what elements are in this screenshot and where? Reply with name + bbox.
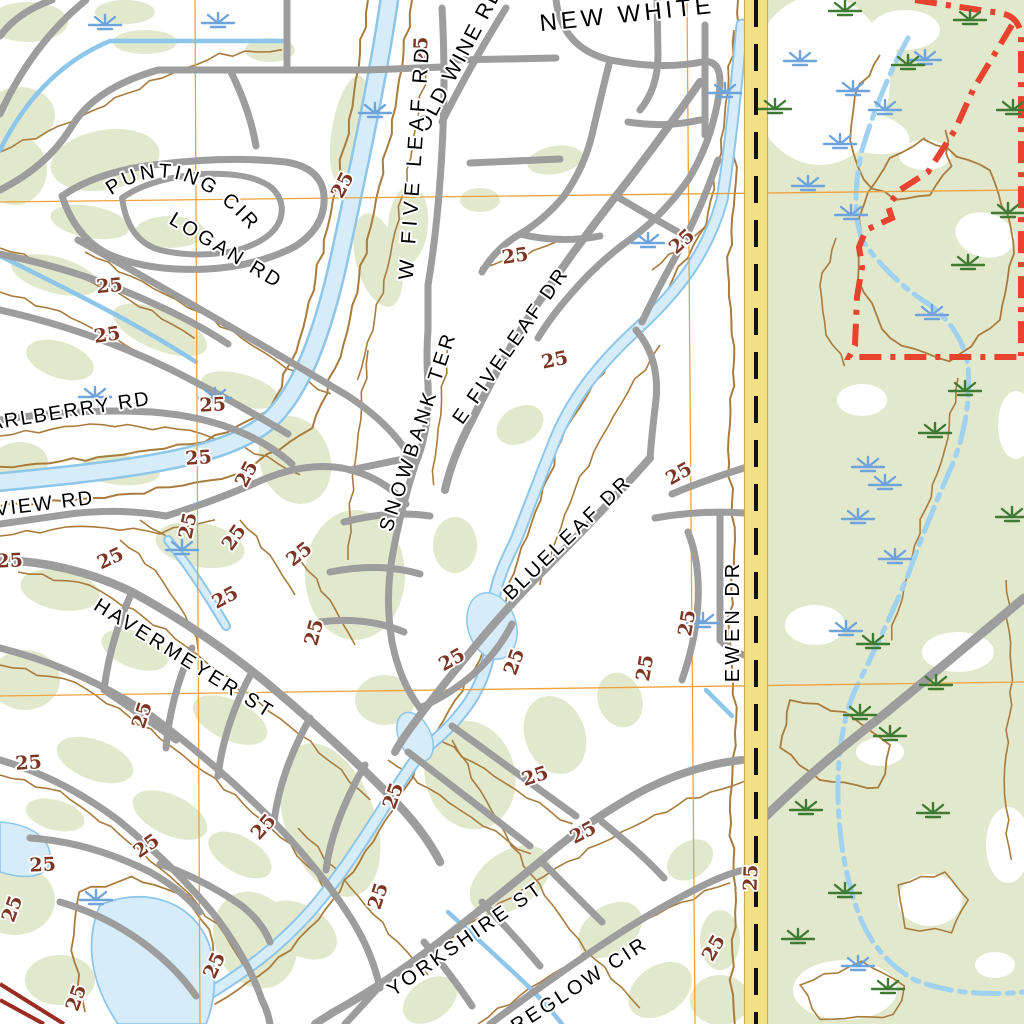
contour-label: 25 bbox=[435, 644, 469, 676]
marsh-icon bbox=[202, 13, 234, 27]
contour-label: 25 bbox=[0, 549, 23, 572]
vegetation-area bbox=[433, 517, 477, 573]
contour-label: 25 bbox=[95, 274, 123, 298]
road bbox=[542, 862, 602, 922]
contour-label: 25 bbox=[93, 322, 122, 347]
vegetation-area bbox=[21, 332, 99, 388]
street-label: ARLBERRY RD bbox=[0, 388, 152, 435]
vegetation-area bbox=[0, 135, 47, 205]
pond bbox=[92, 897, 215, 1024]
contour-label: 25 bbox=[674, 608, 700, 638]
topo-map: 2525252525252525252525252525252525252525… bbox=[0, 0, 1024, 1024]
divided-highway-line bbox=[0, 1000, 44, 1024]
street-label: EWEN DR bbox=[722, 560, 744, 682]
road bbox=[682, 532, 698, 680]
road bbox=[636, 330, 657, 458]
contour-label: 25 bbox=[94, 543, 127, 574]
street-label: E FIVELEAF DR bbox=[448, 263, 573, 429]
road bbox=[520, 234, 600, 240]
contour-label: 25 bbox=[15, 751, 43, 775]
grid-line bbox=[195, 0, 200, 1024]
road bbox=[655, 512, 744, 518]
stream bbox=[706, 690, 732, 716]
vegetation-area bbox=[690, 975, 750, 1024]
road bbox=[230, 70, 256, 146]
street-label: NEW WHITE bbox=[538, 0, 716, 37]
vegetation-area bbox=[489, 397, 550, 453]
contour-label: 25 bbox=[29, 853, 57, 876]
road bbox=[470, 159, 560, 163]
contour-label: 25 bbox=[199, 393, 227, 416]
vegetation-area bbox=[460, 188, 500, 212]
contour-label: 25 bbox=[300, 617, 328, 648]
clearing-area bbox=[856, 738, 904, 766]
contour-label: 25 bbox=[740, 864, 763, 891]
topo-map-canvas: 2525252525252525252525252525252525252525… bbox=[0, 0, 1024, 1024]
contour-label: 25 bbox=[540, 347, 570, 374]
street-label: W FIVE LEAF RD bbox=[395, 43, 434, 281]
road bbox=[628, 120, 700, 125]
clearing-area bbox=[785, 605, 845, 645]
road bbox=[602, 822, 664, 878]
contour-label: 25 bbox=[185, 446, 213, 470]
contour-label: 25 bbox=[501, 243, 530, 268]
clearing-area bbox=[975, 952, 1015, 978]
clearing-area bbox=[837, 384, 887, 416]
road bbox=[262, 1000, 270, 1024]
contour-label: 25 bbox=[632, 653, 658, 683]
